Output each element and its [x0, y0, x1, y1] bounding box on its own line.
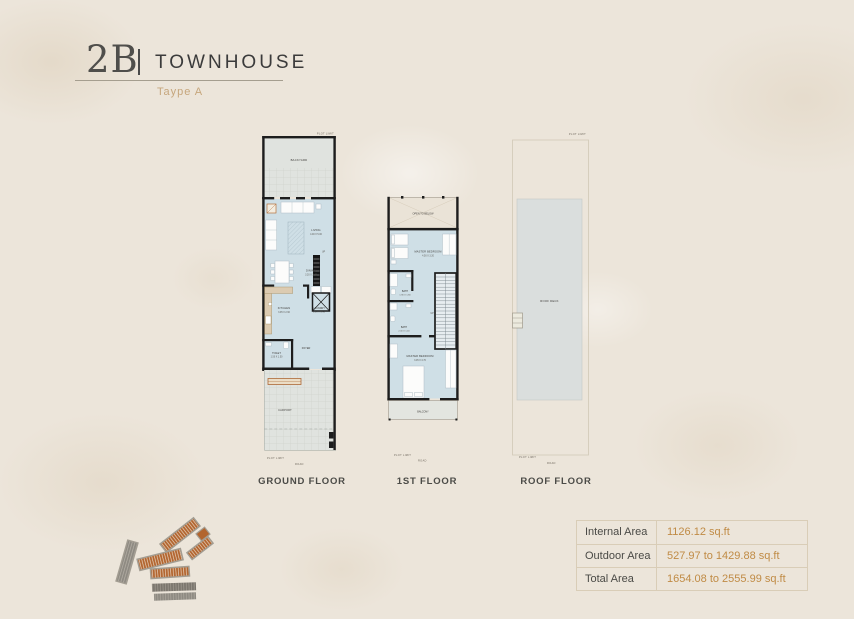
table-row: Total Area 1654.08 to 2555.99 sq.ft	[577, 567, 807, 590]
plot-limit-label: PLOT LIMIT	[394, 453, 411, 457]
first-floor-label: 1ST FLOOR	[362, 476, 492, 487]
masterplan-logo-icon	[110, 507, 220, 602]
area-row-label: Total Area	[577, 568, 657, 590]
carport-label: CARPORT	[278, 408, 292, 412]
wc	[391, 316, 396, 322]
rug	[288, 222, 304, 254]
header-divider	[138, 49, 140, 75]
bath-1-label: BATH	[402, 290, 408, 293]
road-label: ROAD	[295, 462, 304, 466]
area-row-value: 1126.12 sq.ft	[657, 521, 807, 544]
open-to-below-label: OPEN TO BELOW	[413, 213, 435, 216]
side-sofa	[266, 220, 277, 250]
open-to-below-area: OPEN TO BELOW	[387, 196, 458, 230]
brochure-page: 2B TOWNHOUSE Taype A PLOT LIMIT BACKYARD	[0, 0, 854, 619]
wc	[391, 289, 396, 295]
toilet-label: TOILET	[272, 352, 281, 355]
table-row: Outdoor Area 527.97 to 1429.88 sq.ft	[577, 544, 807, 567]
road-label: ROAD	[418, 459, 427, 463]
kitchen-counter	[265, 287, 272, 334]
dining-label: DINING	[306, 269, 316, 273]
road-label: ROAD	[547, 461, 556, 465]
logo-gray-bar	[115, 539, 139, 585]
header-underline	[75, 80, 283, 81]
master-bedroom-2-dim: 3.05 X 3.70	[414, 360, 426, 362]
sofa	[281, 202, 314, 213]
logo-orange-bar	[150, 566, 191, 580]
ground-floor-plan: PLOT LIMIT BACKYARD	[255, 128, 350, 473]
wc	[284, 342, 289, 349]
basin	[406, 304, 411, 308]
bath-2-label: BATH	[401, 326, 407, 329]
roof-deck-label: ROOF DECK	[540, 299, 558, 303]
master-bedroom-1-dim: 4.50 X 3.20	[422, 255, 434, 257]
kitchen-dim: 3.95 X 2.60	[278, 312, 290, 314]
area-row-label: Internal Area	[577, 521, 657, 544]
balcony-label: BALCONY	[417, 411, 429, 414]
up-label: UP	[322, 252, 326, 254]
dining-dim: 3.20 X 3.40	[305, 274, 317, 276]
basin	[406, 274, 411, 278]
page-title: TOWNHOUSE	[155, 52, 307, 74]
shower	[390, 303, 397, 310]
bath-2-dim: 2.00 X 1.40	[398, 330, 410, 332]
logo-gray-row	[154, 592, 196, 600]
roof-stair-access	[513, 313, 523, 328]
basin	[266, 343, 272, 347]
bathtub	[390, 274, 398, 287]
living-dim: 4.00 X 5.00	[310, 234, 322, 236]
backyard-label: BACKYARD	[291, 158, 308, 162]
area-table: Internal Area 1126.12 sq.ft Outdoor Area…	[576, 520, 808, 591]
master-bedroom-2-label: MASTER BEDROOM	[406, 354, 433, 358]
toilet-dim: 1.50 X 1.50	[271, 357, 283, 359]
sink	[268, 302, 272, 306]
roof-floor-label: ROOF FLOOR	[491, 476, 621, 487]
dresser	[390, 344, 398, 358]
bedroom-level: MASTER BEDROOM 4.50 X 3.20 BATH 1.90 X 1…	[387, 228, 458, 401]
table-row: Internal Area 1126.12 sq.ft	[577, 521, 807, 544]
living-label: LIVING	[311, 228, 320, 232]
stove	[266, 316, 272, 324]
plot-limit-label: PLOT LIMIT	[267, 456, 284, 460]
kitchen-label: KITCHEN	[278, 306, 290, 310]
area-row-value: 1654.08 to 2555.99 sq.ft	[657, 568, 807, 590]
balcony-area: BALCONY	[389, 401, 458, 421]
master-bedroom-1-label: MASTER BEDROOM	[414, 250, 441, 254]
ground-floor-label: GROUND FLOOR	[237, 476, 367, 487]
laundry-dim: 1.00 X 1.90	[313, 312, 325, 314]
area-row-value: 527.97 to 1429.88 sq.ft	[657, 545, 807, 567]
first-floor-plan: OPEN TO BELOW MASTER BEDROOM 4.50 X 3.20…	[380, 188, 470, 478]
plot-limit-label: PLOT LIMIT	[317, 132, 334, 136]
carport-area: CARPORT	[264, 370, 336, 451]
foyer-label: FOYER	[302, 347, 311, 350]
up-label: UP	[431, 313, 435, 315]
living-dining-area: LIVING 4.00 X 5.00 UP DINING 3.20 X 3.40	[262, 197, 336, 371]
page-subtitle: Taype A	[157, 86, 203, 98]
logo-dark-row	[152, 582, 196, 592]
roof-floor-plan: PLOT LIMIT ROOF DECK PLOT LIMIT ROAD	[505, 128, 600, 473]
dining-table	[275, 261, 289, 283]
plot-limit-label: PLOT LIMIT	[519, 455, 536, 459]
bath-1-dim: 1.90 X 1.80	[399, 294, 411, 296]
plot-limit-label: PLOT LIMIT	[569, 132, 586, 136]
backyard-area: BACKYARD	[262, 136, 336, 199]
unit-code: 2B	[86, 38, 139, 81]
area-row-label: Outdoor Area	[577, 545, 657, 567]
